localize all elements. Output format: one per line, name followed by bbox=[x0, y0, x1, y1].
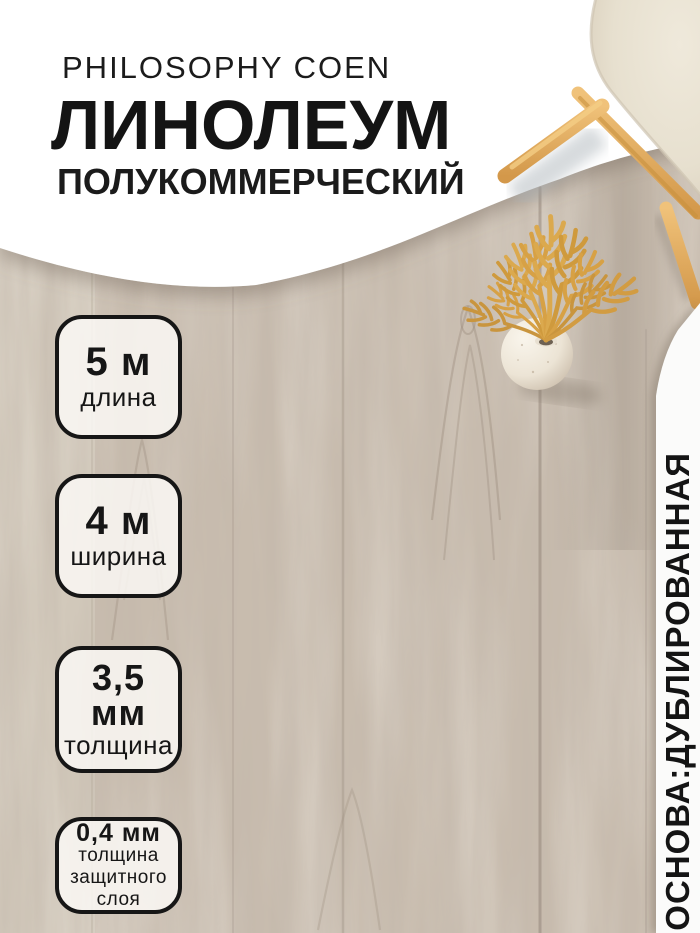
photo-scene bbox=[0, 0, 700, 933]
photo-edge-strip bbox=[656, 303, 700, 933]
product-card-image: { "header": { "brand": "PHILOSOPHY COEN"… bbox=[0, 0, 700, 933]
